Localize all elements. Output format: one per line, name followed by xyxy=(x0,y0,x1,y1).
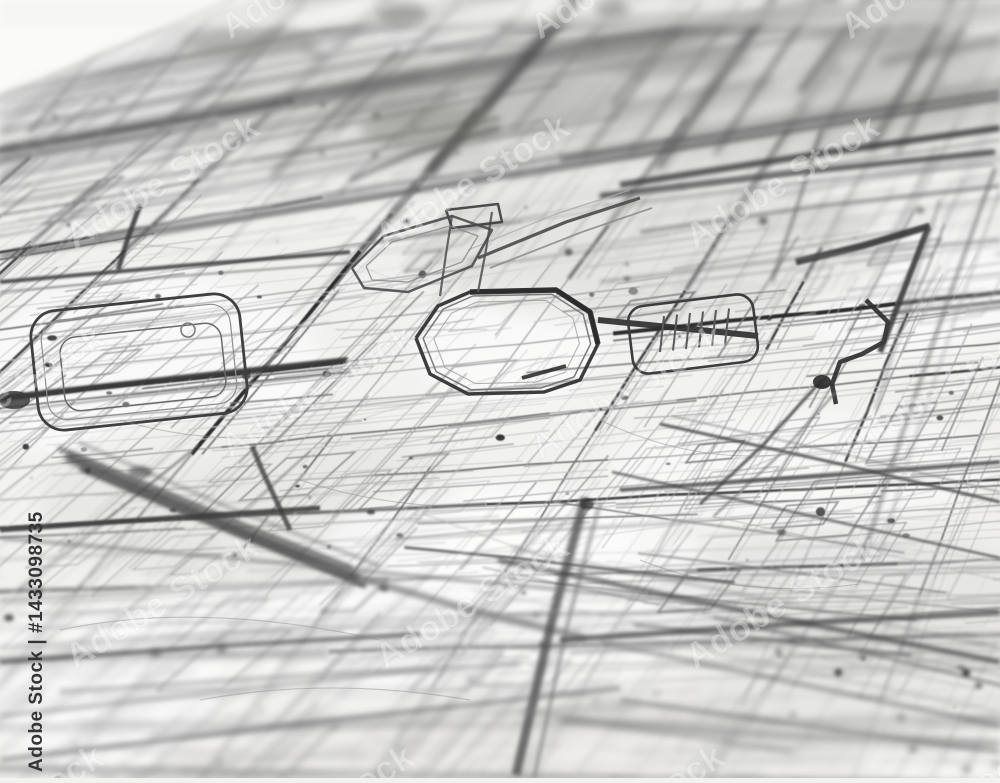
svg-text:Adobe Stock | #1433098735: Adobe Stock | #1433098735 xyxy=(26,511,47,772)
